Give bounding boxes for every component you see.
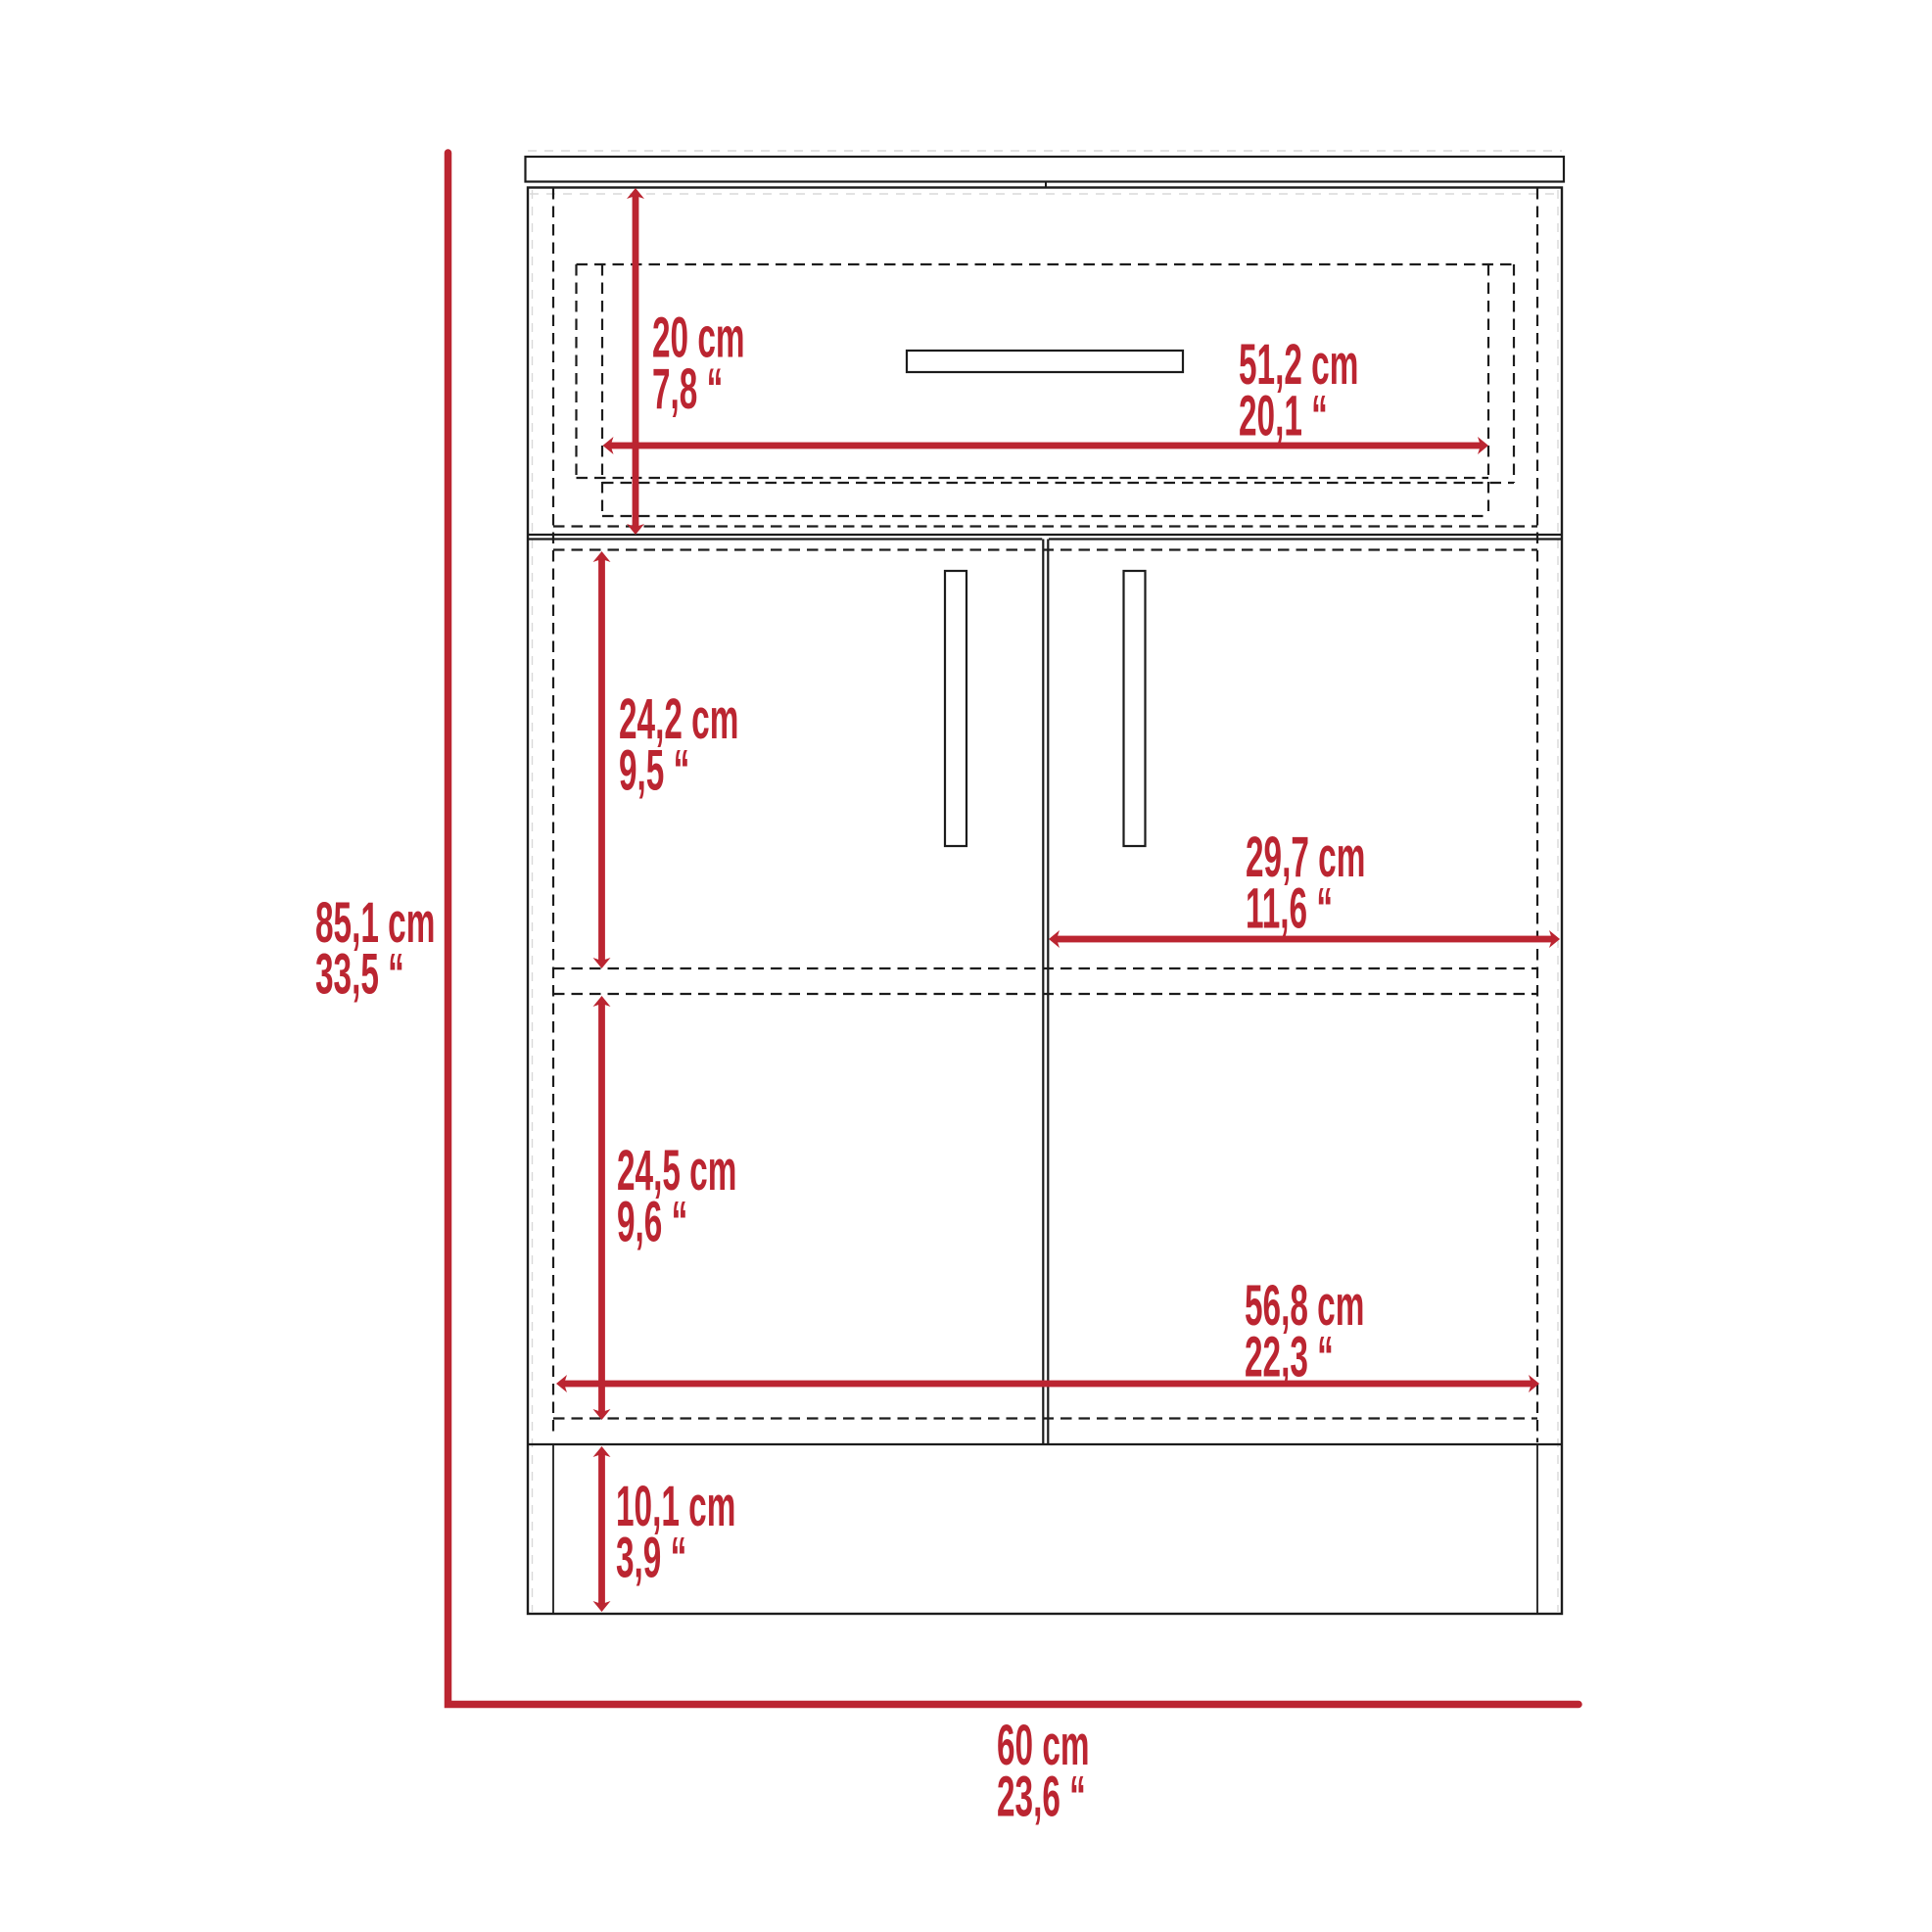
svg-text:9,5 “: 9,5 “ <box>619 739 689 803</box>
svg-text:33,5 “: 33,5 “ <box>315 943 404 1007</box>
svg-text:22,3 “: 22,3 “ <box>1245 1326 1334 1390</box>
svg-text:11,6 “: 11,6 “ <box>1246 877 1333 941</box>
svg-text:7,8 “: 7,8 “ <box>652 358 723 422</box>
svg-text:3,9 “: 3,9 “ <box>616 1527 686 1590</box>
svg-text:9,6 “: 9,6 “ <box>617 1191 687 1254</box>
svg-text:23,6 “: 23,6 “ <box>997 1766 1086 1829</box>
svg-text:20,1 “: 20,1 “ <box>1239 385 1328 448</box>
